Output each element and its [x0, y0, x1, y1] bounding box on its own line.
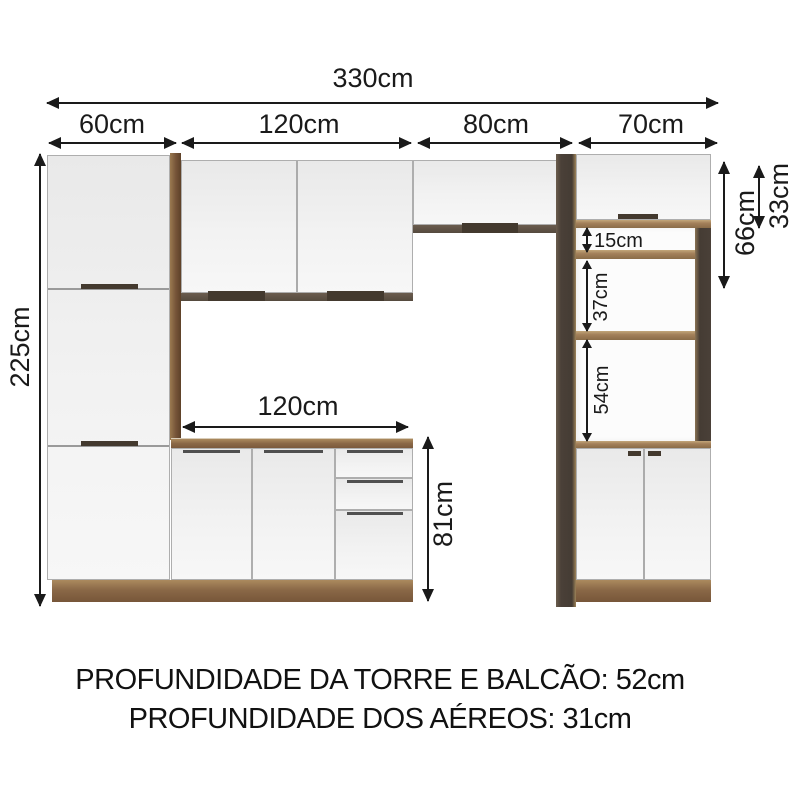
tower-right-side-panel	[695, 228, 711, 441]
dim-total-height-arrow	[39, 154, 41, 606]
dim-niche-37-arrow	[586, 261, 588, 331]
tower-base-door-seam	[643, 449, 645, 579]
wall-cabinet-120-bottom-edge	[181, 293, 413, 301]
wall-cabinet-120-handle-left	[208, 291, 265, 301]
dim-section-70-label: 70cm	[618, 110, 684, 140]
tower-base-cabinet-top	[576, 441, 711, 448]
tower-shelf-2	[576, 331, 695, 340]
dim-counter-height-label: 81cm	[429, 481, 459, 547]
dim-hood-33-arrow	[758, 166, 760, 228]
counter-door-2	[252, 448, 335, 580]
hood-cabinet-80	[413, 160, 565, 225]
depth-note-tower-counter: PROFUNDIDADE DA TORRE E BALCÃO: 52cm	[75, 664, 684, 697]
counter-door-1	[171, 448, 252, 580]
tower-base-handle-left	[628, 451, 641, 456]
kitchen-dimension-diagram: 330cm 60cm 120cm 80cm 70cm 225cm	[0, 0, 800, 800]
dim-niche-54-arrow	[586, 340, 588, 441]
tall-cabinet-handle-1	[81, 284, 138, 289]
wall-cabinet-120-handle-right	[327, 291, 384, 301]
dim-section-120-arrow	[182, 142, 411, 144]
tower-base-handle-right	[648, 451, 661, 456]
dim-section-60-arrow	[49, 142, 176, 144]
tower-left-side-panel	[556, 154, 576, 607]
dim-section-80-label: 80cm	[463, 110, 529, 140]
dim-counter-width-arrow	[183, 426, 408, 428]
tall-cabinet-side-panel	[170, 153, 181, 440]
counter-drawer-3	[335, 510, 413, 580]
dim-niche-15-label: 15cm	[594, 230, 643, 252]
wall-cabinet-120-door-seam	[296, 161, 298, 292]
tower-top-cabinet-underside	[576, 220, 711, 228]
tower-top-cabinet-door	[576, 154, 711, 220]
tower-plinth	[576, 580, 711, 602]
dim-hood-33-label: 33cm	[765, 163, 795, 229]
dim-section-70-arrow	[579, 142, 717, 144]
dim-niche-54-label: 54cm	[591, 366, 613, 415]
counter-drawer-1-handle	[347, 450, 403, 453]
dim-section-80-arrow	[418, 142, 572, 144]
dim-section-120-label: 120cm	[258, 110, 339, 140]
depth-note-wall-cabinets: PROFUNDIDADE DOS AÉREOS: 31cm	[129, 703, 632, 736]
dim-total-width-label: 330cm	[332, 64, 413, 94]
dim-total-width-arrow	[47, 102, 718, 104]
tall-cabinet-handle-2	[81, 441, 138, 446]
dim-niche-37-label: 37cm	[590, 273, 612, 322]
hood-cabinet-80-bottom-edge	[413, 225, 565, 233]
counter-door-2-handle	[264, 450, 323, 453]
wall-cabinet-120	[181, 160, 413, 293]
counter-drawer-3-handle	[347, 512, 403, 515]
dim-section-60-label: 60cm	[79, 110, 145, 140]
counter-drawer-2-handle	[347, 480, 403, 483]
dim-counter-width-label: 120cm	[257, 392, 338, 422]
tower-base-cabinet	[576, 448, 711, 580]
counter-door-1-handle	[183, 450, 240, 453]
dim-upper-66-arrow	[723, 162, 725, 288]
tall-cabinet	[47, 155, 170, 580]
tower-top-cabinet-handle	[618, 214, 658, 219]
base-plinth	[52, 580, 413, 602]
dim-niche-15-arrow	[586, 228, 588, 252]
hood-cabinet-80-handle	[462, 223, 518, 233]
dim-total-height-label: 225cm	[6, 306, 36, 387]
